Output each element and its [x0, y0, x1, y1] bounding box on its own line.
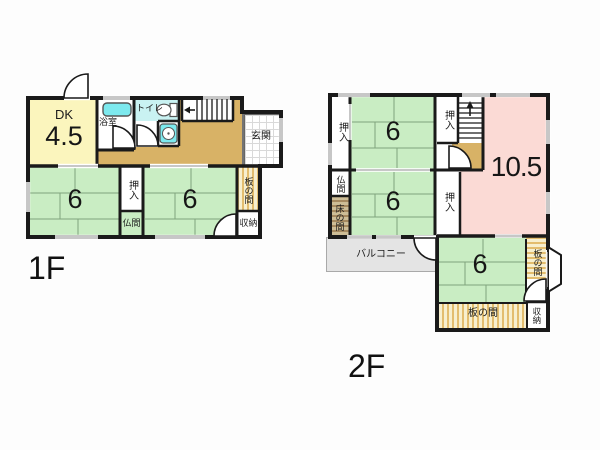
- tatami6-right-label-1f: 6: [170, 185, 210, 213]
- toilet-label: トイレ: [136, 104, 163, 113]
- door-area-2f: [526, 279, 548, 303]
- storage-label-2f: 収納: [532, 302, 541, 328]
- washbasin-area: [158, 121, 179, 146]
- bathroom-label: 浴室: [99, 118, 117, 127]
- butsuma-label-1f: 仏間: [119, 219, 144, 228]
- itanoma-label-1f: 板の間: [243, 170, 252, 210]
- closet-label-1f: 押入: [126, 172, 137, 208]
- tatami6-bottom-label-2f: 6: [460, 250, 500, 278]
- toilet-vestibule: [134, 121, 158, 147]
- tatami6-top-label-2f: 6: [373, 117, 413, 145]
- entrance-label: 玄関: [243, 132, 279, 143]
- room105-label: 10.5: [481, 152, 551, 181]
- tatami6-left-label-1f: 6: [55, 185, 95, 213]
- closet-left-label-2f: 押入: [336, 114, 347, 150]
- stair-landing-2f: [452, 143, 483, 170]
- tatami6-mid-label-2f: 6: [373, 187, 413, 215]
- stairs-area-2f: [458, 95, 483, 143]
- closet-top-label-2f: 押入: [442, 102, 453, 138]
- dk-room-label: DK: [34, 108, 94, 122]
- storage-label-1f: 収納: [236, 219, 261, 228]
- floorplan-canvas: DK 4.5 浴室 トイレ 玄関 6 押入 仏間 6 板の間 収納 1F 押入 …: [0, 0, 600, 450]
- tokonoma-label-2f: 床の間: [334, 199, 343, 235]
- stairs-area-1f: [182, 98, 233, 121]
- balcony-label: バルコニー: [345, 250, 417, 261]
- itanoma-right-label-2f: 板の間: [532, 242, 541, 282]
- dk-size-label: 4.5: [34, 122, 94, 150]
- floor1-title: 1F: [28, 252, 65, 286]
- butsuma-label-2f: 仏間: [335, 172, 344, 196]
- itanoma-bottom-label-2f: 板の間: [453, 309, 513, 320]
- door-arc-dk-entry: [64, 74, 88, 98]
- floor2-title: 2F: [348, 350, 385, 384]
- bay-window-2f: [546, 247, 561, 292]
- closet-mid-label-2f: 押入: [442, 184, 453, 220]
